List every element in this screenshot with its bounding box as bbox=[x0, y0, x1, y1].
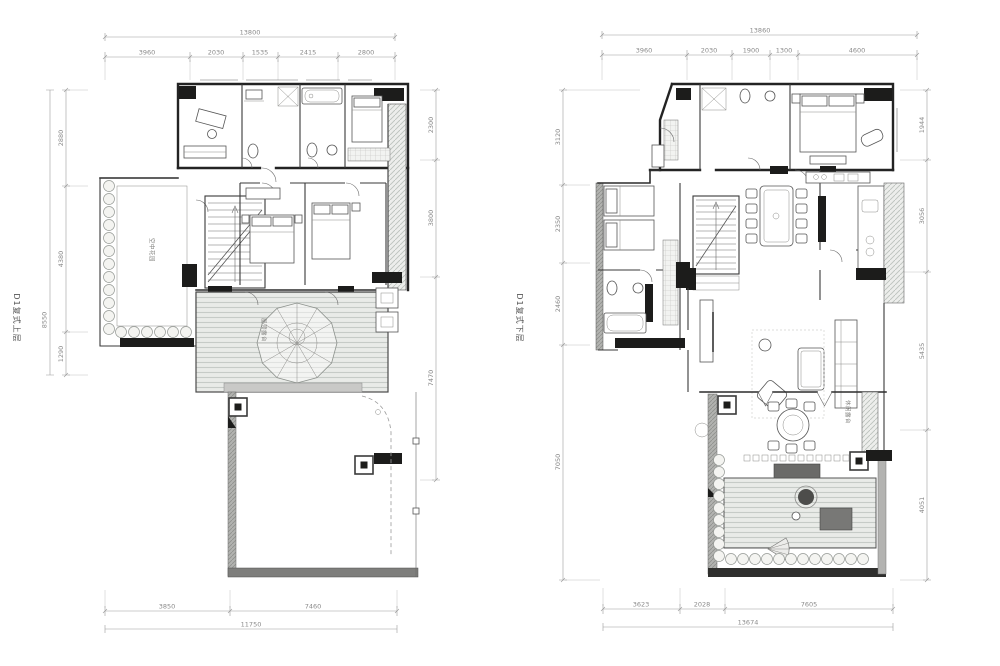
dim-seg: 1300 bbox=[776, 47, 793, 55]
door-arcs bbox=[242, 158, 318, 182]
dim-seg: 2460 bbox=[554, 296, 562, 313]
dim-seg: 1900 bbox=[743, 47, 760, 55]
terrace-lower-label: 休闲露台 bbox=[844, 400, 852, 424]
dim-seg: 2880 bbox=[57, 130, 65, 147]
dim-seg: 7605 bbox=[801, 601, 818, 609]
dim-seg: 4380 bbox=[57, 251, 65, 268]
dim-seg: 1944 bbox=[918, 117, 926, 134]
dim-seg: 3120 bbox=[554, 129, 562, 146]
dim-seg: 1290 bbox=[57, 346, 65, 363]
dim-seg: 2300 bbox=[427, 117, 435, 134]
lower-roof-area bbox=[224, 383, 419, 577]
floorplan-drawing: 13800 3960 2030 1535 2415 2800 3850 7460… bbox=[0, 0, 1000, 666]
planter-row bbox=[744, 455, 849, 461]
service-fixtures bbox=[372, 272, 402, 332]
bedroom-ne-furniture bbox=[348, 96, 390, 161]
dining-set bbox=[746, 186, 807, 246]
dim-seg: 3850 bbox=[159, 603, 176, 611]
garden-plants bbox=[104, 181, 192, 338]
dim-seg: 5435 bbox=[918, 343, 926, 360]
dim-seg: 2030 bbox=[208, 49, 225, 57]
roof-terrace: 屋顶露台 bbox=[196, 292, 388, 392]
dim-seg: 3960 bbox=[139, 49, 156, 57]
dim-top-total-upper: 13800 bbox=[240, 29, 261, 37]
garden-label: 空中花园 bbox=[148, 238, 156, 262]
dim-seg: 4051 bbox=[918, 497, 926, 514]
second-bedroom bbox=[312, 203, 360, 259]
dim-seg: 2415 bbox=[300, 49, 317, 57]
dim-seg: 3056 bbox=[918, 208, 926, 225]
balcony-strip bbox=[388, 104, 406, 290]
plan-lower-title: D1复式下层 bbox=[515, 293, 525, 342]
master-suite-furniture bbox=[792, 94, 885, 164]
stairs-lower bbox=[686, 196, 739, 290]
dim-seg: 2350 bbox=[554, 216, 562, 233]
dim-seg: 7470 bbox=[427, 370, 435, 387]
dim-top-total-lower: 13860 bbox=[750, 27, 771, 35]
dim-seg: 4600 bbox=[849, 47, 866, 55]
dim-bottom-total-lower: 13674 bbox=[738, 619, 759, 627]
dim-seg: 7050 bbox=[554, 454, 562, 471]
kitchen bbox=[806, 170, 904, 303]
dim-seg: 2800 bbox=[358, 49, 375, 57]
plan-upper-title: D1复式上层 bbox=[12, 293, 22, 342]
dim-seg: 2030 bbox=[701, 47, 718, 55]
dim-left-total-upper: 8550 bbox=[41, 312, 49, 329]
plan-lower: 13860 3960 2030 1900 1300 4600 3623 2028… bbox=[515, 27, 931, 632]
floorplan-sheet: 13800 3960 2030 1535 2415 2800 3850 7460… bbox=[0, 0, 1000, 666]
dim-seg: 2028 bbox=[694, 601, 711, 609]
dim-seg: 3800 bbox=[427, 210, 435, 227]
dim-seg: 3960 bbox=[636, 47, 653, 55]
bedroom-nw-furniture bbox=[184, 109, 226, 158]
bath-2-fixtures bbox=[302, 88, 342, 157]
left-wing bbox=[596, 170, 690, 350]
bath-1-fixtures bbox=[244, 87, 298, 158]
terrace-label: 屋顶露台 bbox=[260, 318, 268, 342]
plan-upper: 13800 3960 2030 1535 2415 2800 3850 7460… bbox=[12, 29, 440, 634]
dim-seg: 7460 bbox=[305, 603, 322, 611]
dim-seg: 3623 bbox=[633, 601, 650, 609]
sky-garden: 空中花园 bbox=[100, 178, 208, 347]
dim-seg: 1535 bbox=[252, 49, 269, 57]
dim-bottom-total-upper: 11750 bbox=[241, 621, 262, 629]
